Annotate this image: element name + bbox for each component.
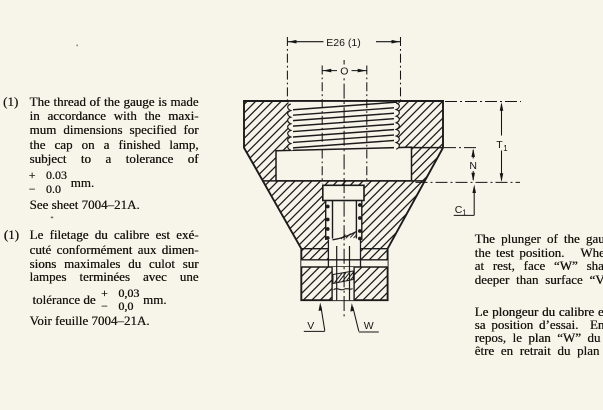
svg-text:E26 (1): E26 (1)	[326, 37, 360, 49]
svg-text:V: V	[307, 320, 314, 332]
svg-text:W: W	[364, 320, 374, 332]
svg-text:O: O	[340, 66, 348, 78]
svg-text:1: 1	[462, 209, 467, 218]
svg-text:N: N	[469, 160, 477, 172]
svg-text:1: 1	[503, 144, 508, 153]
